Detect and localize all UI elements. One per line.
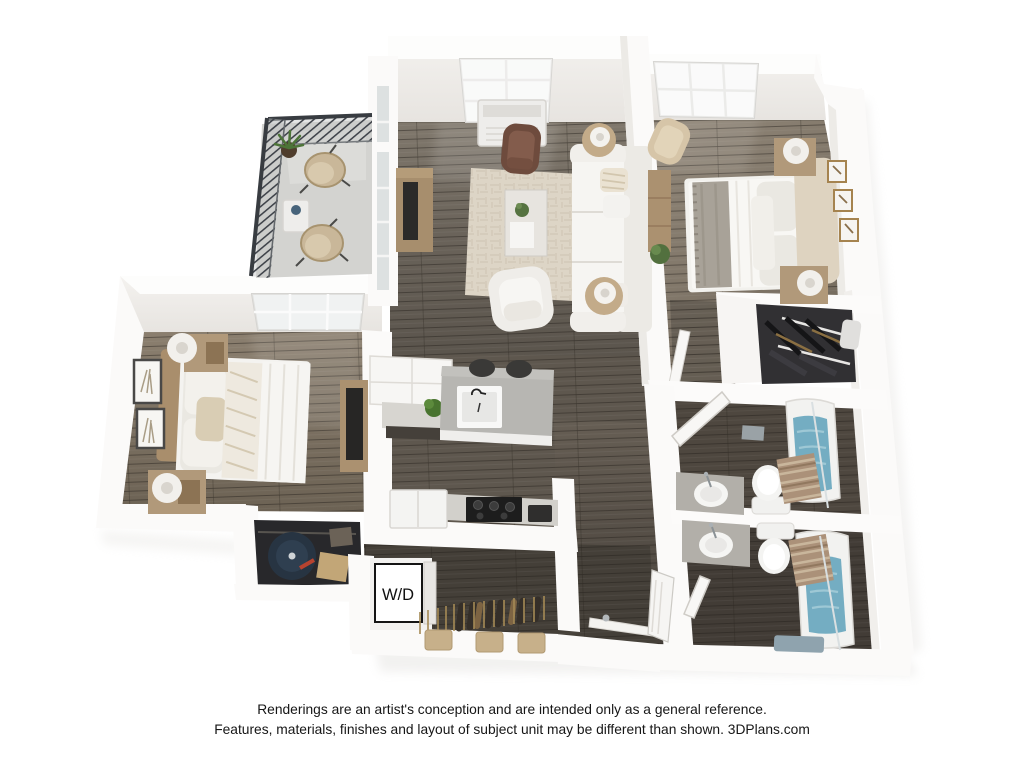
svg-text:Renderings are an artist's con: Renderings are an artist's conception an… bbox=[257, 702, 767, 717]
svg-text:Features, materials, finishes: Features, materials, finishes and layout… bbox=[214, 722, 810, 737]
svg-text:W/D: W/D bbox=[382, 586, 414, 604]
